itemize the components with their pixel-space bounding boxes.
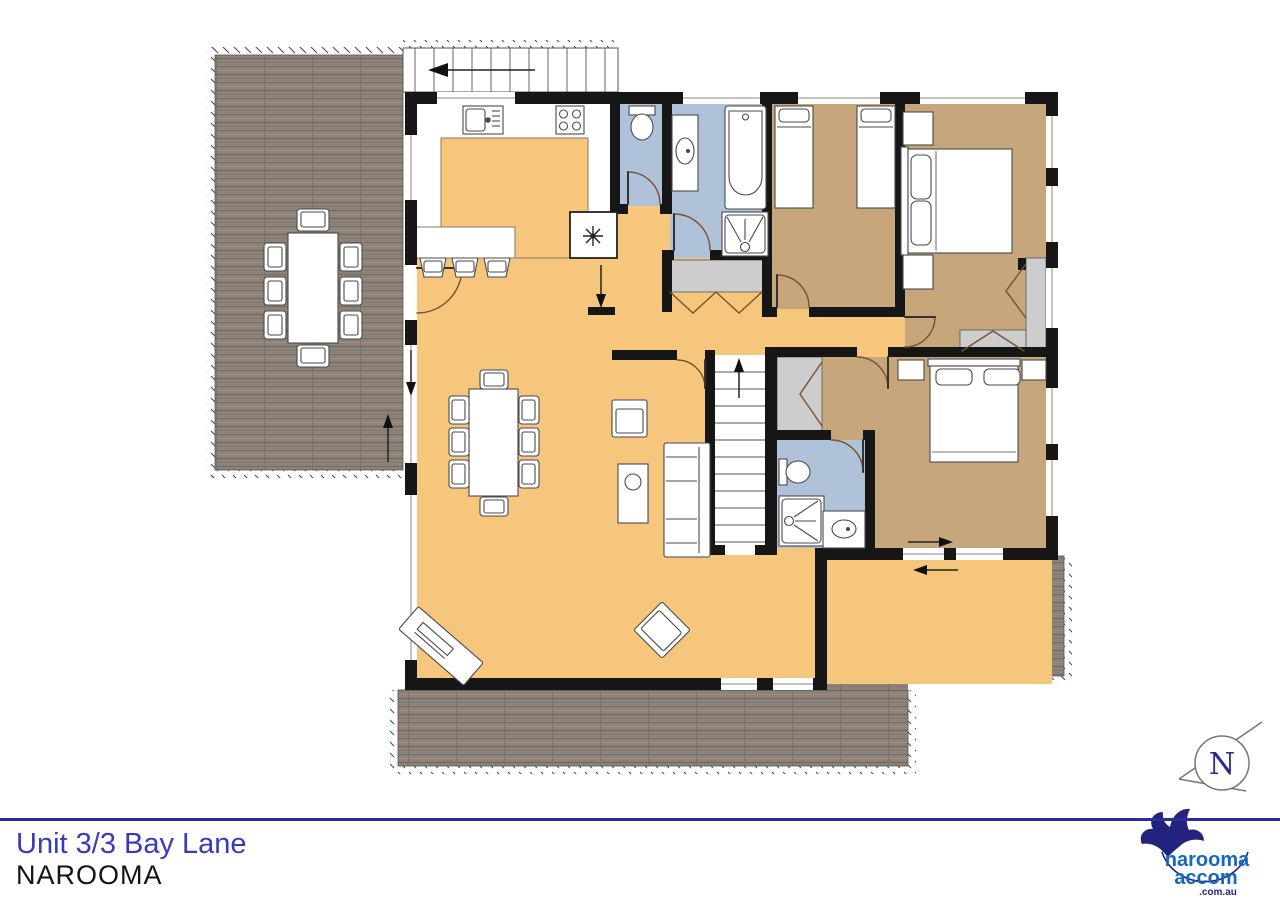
deck-edge-hatch: [211, 47, 403, 55]
vanity: [823, 511, 865, 548]
bar-stool: [420, 258, 446, 277]
coffee-table: [618, 464, 648, 523]
dining-chair: [519, 396, 539, 424]
internal-stairs-floor: [715, 355, 765, 545]
outdoor-chair: [297, 345, 329, 367]
outdoor-chair: [264, 243, 286, 271]
narooma-accom-logo: narooma accom .com.au: [1141, 809, 1250, 898]
toilet: [779, 459, 810, 485]
breakfast-bar: [415, 227, 515, 258]
sliding-door-mullion: [757, 678, 773, 690]
deck-edge-hatch: [1064, 556, 1072, 684]
dining-chair: [480, 370, 508, 389]
toilet-bowl: [631, 114, 653, 140]
refrigerator: [570, 212, 617, 258]
dining-chair: [449, 460, 469, 488]
dining-table: [469, 389, 518, 496]
sofa: [664, 443, 710, 557]
deck-edge-hatch: [390, 766, 916, 774]
deck-edge-hatch: [908, 690, 916, 766]
single-bed: [857, 106, 895, 208]
external-stairs: [403, 40, 618, 92]
outdoor-chair: [264, 277, 286, 305]
outdoor-chair: [340, 311, 362, 339]
north-label: N: [1209, 747, 1235, 782]
deck-edge-hatch: [390, 690, 398, 766]
bathtub: [725, 106, 766, 209]
deck-edge-hatch: [211, 470, 403, 478]
linen-closet: [670, 260, 764, 292]
deck-boards: [398, 690, 908, 766]
outdoor-table: [288, 233, 338, 343]
logo-domain: .com.au: [1199, 887, 1237, 898]
logo-brand-bottom: accom: [1174, 867, 1237, 889]
dining-chair: [480, 497, 508, 516]
dining-chair: [449, 396, 469, 424]
bedside-table: [903, 255, 933, 289]
vanity: [672, 115, 698, 191]
wc: [629, 106, 655, 140]
bar-stool: [452, 258, 478, 277]
bedside-table: [1022, 360, 1046, 380]
kitchen-sink: [463, 106, 503, 134]
outdoor-chair: [340, 243, 362, 271]
dining-chair: [449, 428, 469, 456]
queen-bed: [901, 147, 1012, 255]
armchair: [612, 400, 647, 437]
property-address: Unit 3/3 Bay Lane: [16, 828, 247, 860]
dining-chair: [519, 460, 539, 488]
sliding-door-mullion: [944, 548, 956, 560]
address-block: Unit 3/3 Bay Lane NAROOMA: [16, 828, 247, 891]
north-indicator: N: [1179, 722, 1262, 791]
single-bed: [775, 106, 813, 208]
deck-edge-hatch: [403, 40, 618, 48]
bedside-table: [898, 360, 924, 380]
bedside-table: [903, 112, 933, 145]
outdoor-chair: [340, 277, 362, 305]
floor-plan: N narooma accom .com.au: [0, 0, 1280, 905]
property-locality: NAROOMA: [16, 860, 247, 890]
shower: [779, 496, 824, 546]
queen-closet-side: [1026, 258, 1046, 352]
deck-bottom: [390, 690, 916, 774]
cooktop: [556, 106, 584, 134]
shower: [722, 212, 768, 256]
dining-chair: [519, 428, 539, 456]
outdoor-chair: [297, 209, 329, 231]
queen-bed: [928, 359, 1020, 462]
footer-divider: [0, 818, 1280, 821]
outdoor-chair: [264, 311, 286, 339]
deck-edge-hatch: [207, 47, 215, 478]
bar-stool: [484, 258, 510, 277]
